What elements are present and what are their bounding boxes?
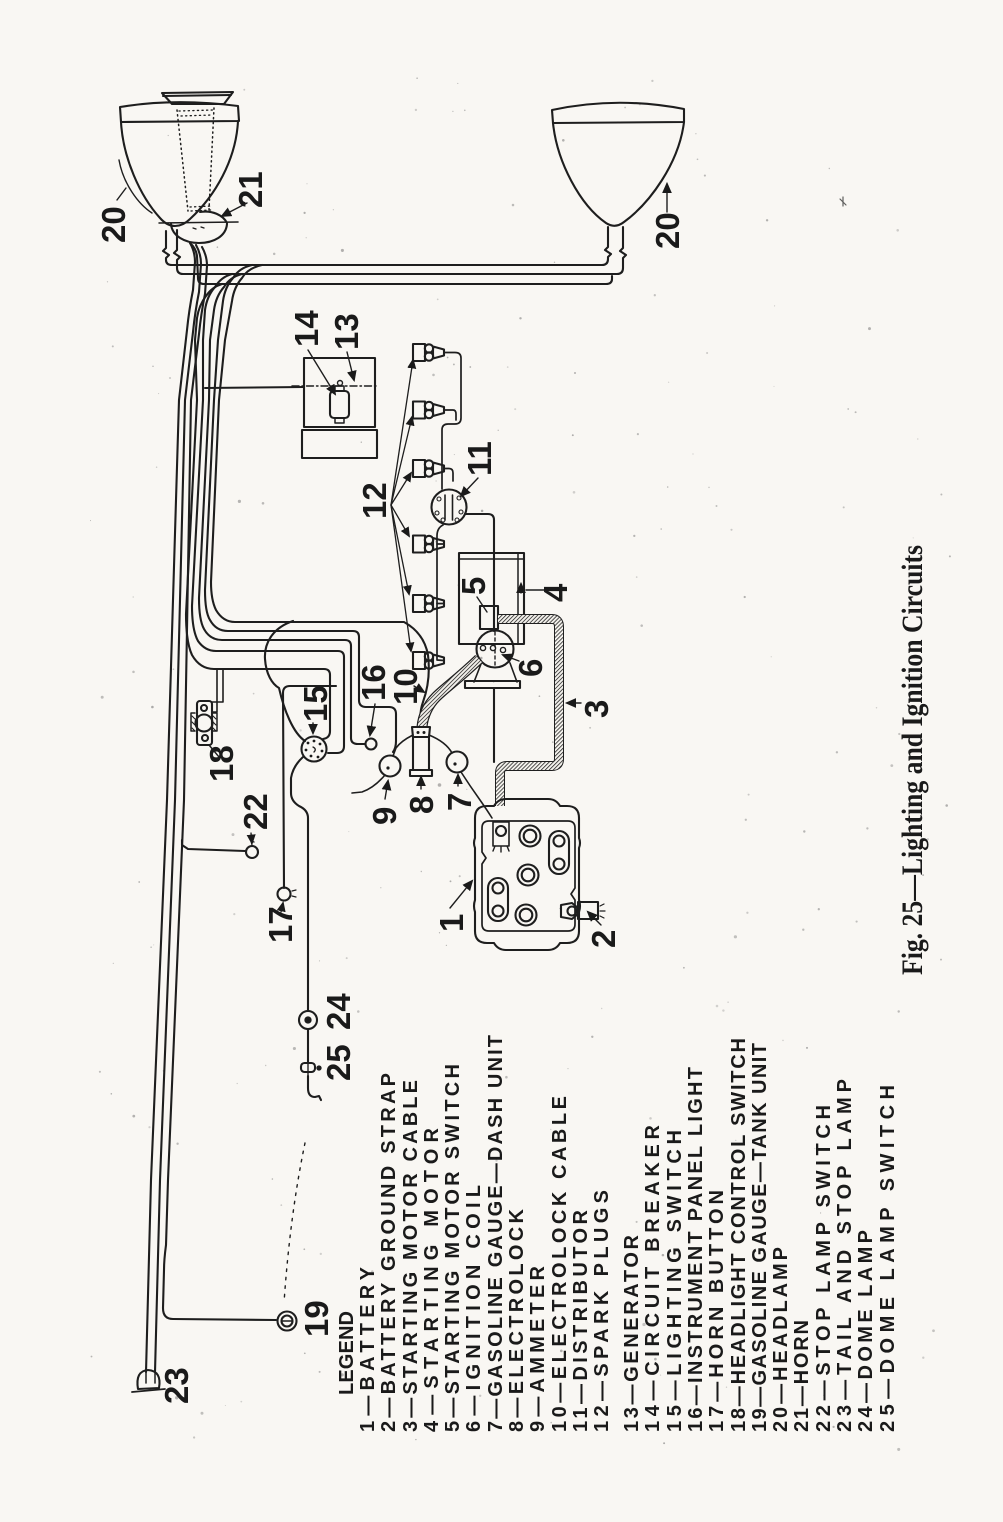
svg-text:Fig. 25—Lighting and Ignition: Fig. 25—Lighting and Ignition Circuits <box>896 545 929 975</box>
svg-text:22: 22 <box>237 793 274 830</box>
svg-text:13—GENERATOR: 13—GENERATOR <box>621 1234 643 1432</box>
svg-text:9—AMMETER: 9—AMMETER <box>527 1265 549 1432</box>
svg-text:9: 9 <box>366 807 403 825</box>
svg-text:LEGEND: LEGEND <box>336 1311 358 1395</box>
svg-text:14: 14 <box>288 310 325 347</box>
svg-text:18: 18 <box>203 745 240 782</box>
svg-text:18—HEADLIGHT CONTROL SWITCH: 18—HEADLIGHT CONTROL SWITCH <box>728 1038 750 1432</box>
svg-text:20—HEADLAMP: 20—HEADLAMP <box>770 1247 792 1432</box>
svg-text:3: 3 <box>578 700 615 718</box>
svg-text:19: 19 <box>298 1300 335 1337</box>
svg-text:13: 13 <box>328 313 365 350</box>
svg-text:14—CIRCUIT BREAKER: 14—CIRCUIT BREAKER <box>642 1124 664 1432</box>
svg-text:2—BATTERY GROUND STRAP: 2—BATTERY GROUND STRAP <box>378 1073 400 1432</box>
svg-text:1—BATTERY: 1—BATTERY <box>357 1266 379 1432</box>
svg-text:4: 4 <box>537 583 574 602</box>
svg-text:6: 6 <box>512 659 549 677</box>
svg-text:3—STARTING MOTOR CABLE: 3—STARTING MOTOR CABLE <box>400 1080 422 1432</box>
svg-text:8—ELECTROLOCK: 8—ELECTROLOCK <box>506 1208 528 1432</box>
svg-text:11—DISTRIBUTOR: 11—DISTRIBUTOR <box>570 1209 592 1432</box>
svg-text:25: 25 <box>320 1044 357 1081</box>
svg-text:15: 15 <box>297 685 334 722</box>
svg-text:23: 23 <box>158 1367 195 1404</box>
svg-text:1: 1 <box>433 914 470 932</box>
svg-text:10: 10 <box>387 668 424 705</box>
svg-text:24—DOME LAMP: 24—DOME LAMP <box>855 1230 877 1432</box>
svg-text:16: 16 <box>355 664 392 701</box>
svg-text:15—LIGHTING SWITCH: 15—LIGHTING SWITCH <box>664 1130 686 1432</box>
svg-text:17—HORN BUTTON: 17—HORN BUTTON <box>706 1190 728 1432</box>
svg-text:23—TAIL AND STOP LAMP: 23—TAIL AND STOP LAMP <box>834 1079 856 1432</box>
svg-text:24: 24 <box>320 993 357 1030</box>
svg-text:10—ELECTROLOCK CABLE: 10—ELECTROLOCK CABLE <box>549 1096 571 1432</box>
svg-text:16—INSTRUMENT PANEL LIGHT: 16—INSTRUMENT PANEL LIGHT <box>685 1067 707 1432</box>
svg-text:6—IGNITION COIL: 6—IGNITION COIL <box>463 1185 485 1432</box>
svg-text:7—GASOLINE GAUGE—DASH UNIT: 7—GASOLINE GAUGE—DASH UNIT <box>485 1035 507 1432</box>
svg-text:12—SPARK PLUGS: 12—SPARK PLUGS <box>591 1190 613 1432</box>
svg-text:5—STARTING MOTOR SWITCH: 5—STARTING MOTOR SWITCH <box>442 1064 464 1432</box>
svg-text:25—DOME LAMP SWITCH: 25—DOME LAMP SWITCH <box>877 1085 899 1432</box>
svg-text:4—STARTING MOTOR: 4—STARTING MOTOR <box>421 1127 443 1432</box>
svg-text:22—STOP LAMP SWITCH: 22—STOP LAMP SWITCH <box>813 1105 835 1432</box>
svg-text:7: 7 <box>441 793 478 811</box>
svg-text:21: 21 <box>232 171 269 208</box>
svg-text:8: 8 <box>403 796 440 814</box>
svg-text:5: 5 <box>455 577 492 595</box>
svg-text:20: 20 <box>649 212 686 249</box>
svg-text:21—HORN: 21—HORN <box>791 1320 813 1432</box>
svg-text:12: 12 <box>356 482 393 519</box>
svg-text:20: 20 <box>95 206 132 243</box>
svg-text:2: 2 <box>585 930 622 948</box>
svg-text:19—GASOLINE GAUGE—TANK UNIT: 19—GASOLINE GAUGE—TANK UNIT <box>749 1043 771 1432</box>
svg-text:11: 11 <box>461 441 498 476</box>
